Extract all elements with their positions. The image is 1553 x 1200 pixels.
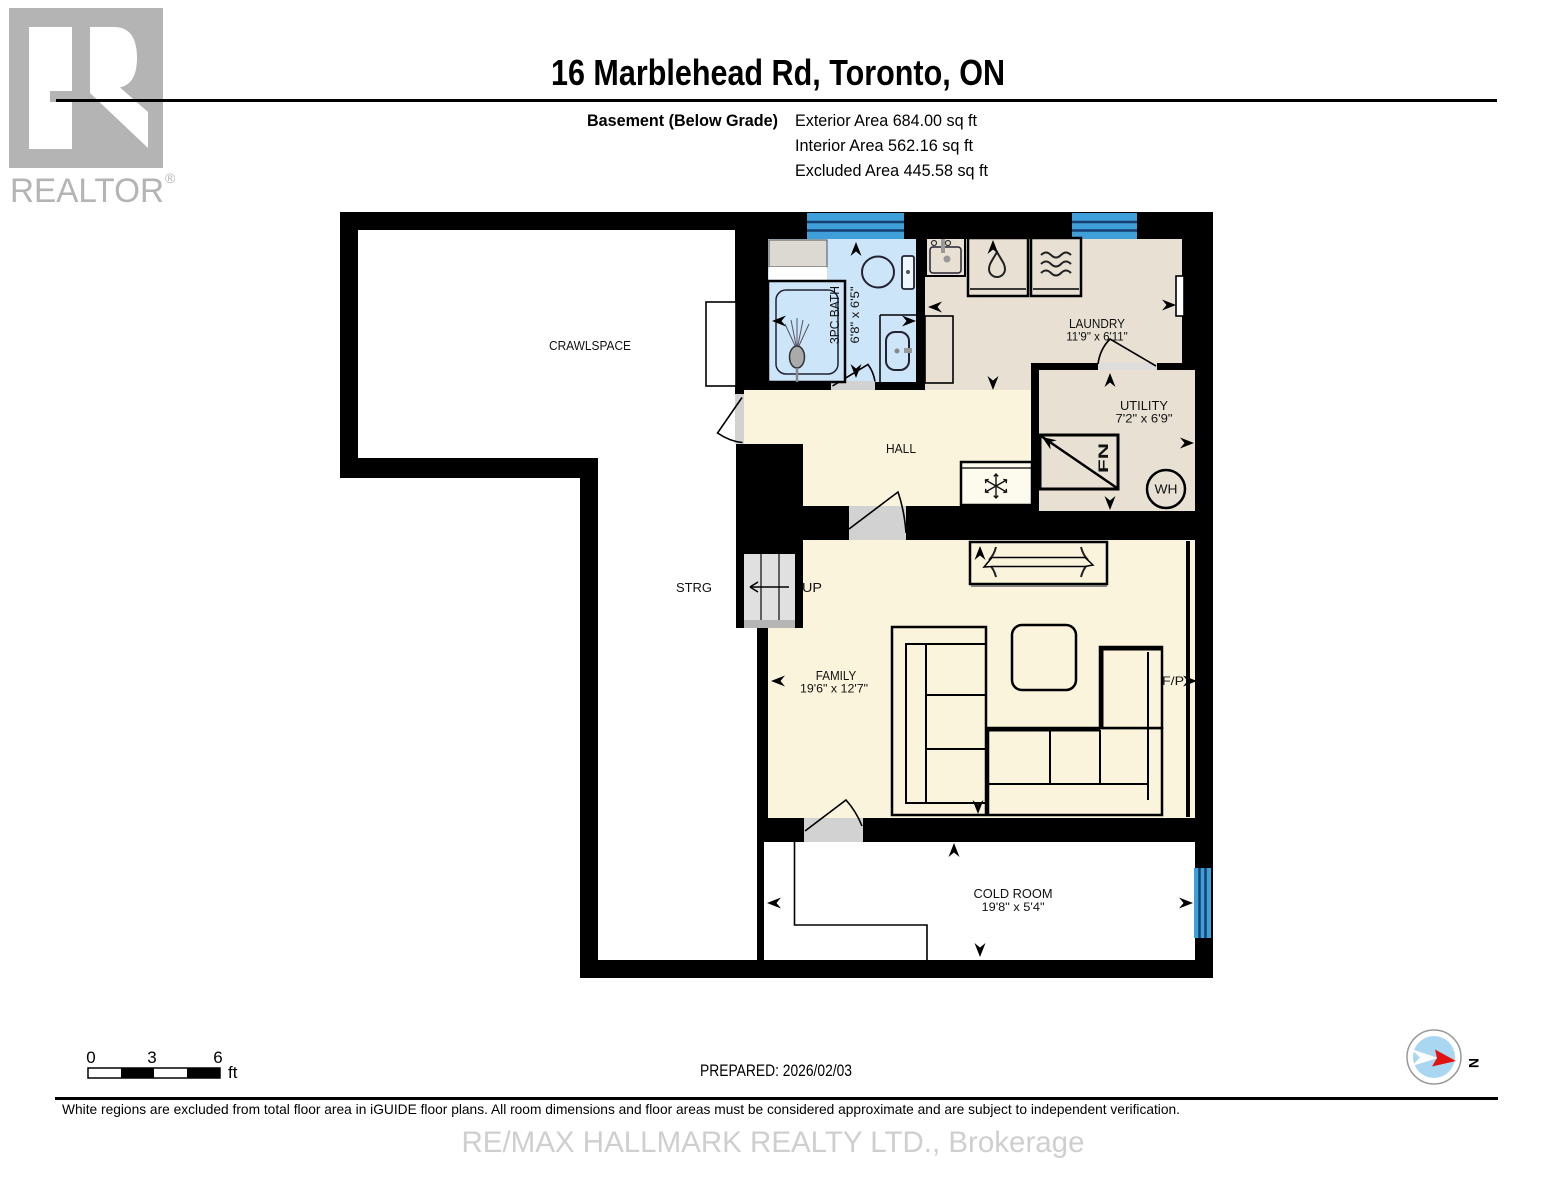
svg-text:3PC BATH: 3PC BATH bbox=[828, 286, 842, 344]
svg-text:UP: UP bbox=[802, 581, 822, 595]
svg-text:PREPARED: 2026/02/03: PREPARED: 2026/02/03 bbox=[700, 1061, 852, 1080]
svg-text:White regions are excluded fro: White regions are excluded from total fl… bbox=[62, 1102, 1180, 1117]
svg-text:16 Marblehead Rd, Toronto, ON: 16 Marblehead Rd, Toronto, ON bbox=[551, 52, 1005, 93]
svg-text:HALL: HALL bbox=[886, 442, 916, 456]
svg-text:19'6" x 12'7": 19'6" x 12'7" bbox=[800, 682, 868, 696]
svg-text:REALTOR: REALTOR bbox=[10, 172, 164, 210]
svg-text:ft: ft bbox=[228, 1063, 238, 1082]
svg-text:0: 0 bbox=[86, 1048, 95, 1067]
svg-text:N: N bbox=[1466, 1058, 1482, 1068]
svg-text:6'8" x 6'5": 6'8" x 6'5" bbox=[848, 287, 862, 344]
svg-text:7'2" x 6'9": 7'2" x 6'9" bbox=[1116, 412, 1173, 426]
svg-text:3: 3 bbox=[147, 1048, 156, 1067]
svg-text:Basement (Below Grade): Basement (Below Grade) bbox=[587, 111, 778, 130]
svg-text:RE/MAX HALLMARK REALTY LTD., B: RE/MAX HALLMARK REALTY LTD., Brokerage bbox=[462, 1126, 1085, 1159]
svg-text:Excluded Area 445.58 sq ft: Excluded Area 445.58 sq ft bbox=[795, 161, 988, 180]
svg-text:Interior Area 562.16 sq ft: Interior Area 562.16 sq ft bbox=[795, 136, 973, 155]
svg-text:CRAWLSPACE: CRAWLSPACE bbox=[549, 339, 631, 353]
svg-text:®: ® bbox=[165, 170, 176, 186]
svg-text:STRG: STRG bbox=[676, 581, 712, 595]
svg-text:FN: FN bbox=[1095, 443, 1111, 473]
svg-text:6: 6 bbox=[213, 1048, 222, 1067]
svg-text:F/P: F/P bbox=[1162, 674, 1184, 688]
svg-text:11'9" x 6'11": 11'9" x 6'11" bbox=[1066, 330, 1128, 344]
svg-text:COLD ROOM: COLD ROOM bbox=[974, 887, 1053, 901]
svg-text:19'8" x 5'4": 19'8" x 5'4" bbox=[982, 900, 1045, 914]
svg-text:Exterior Area 684.00 sq ft: Exterior Area 684.00 sq ft bbox=[795, 111, 977, 130]
svg-text:WH: WH bbox=[1155, 482, 1178, 497]
